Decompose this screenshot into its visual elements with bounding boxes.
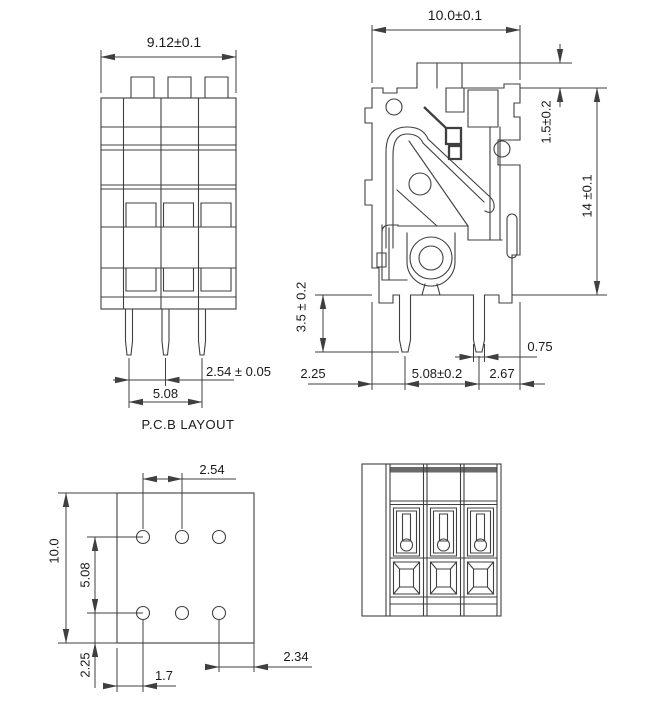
extension-lines bbox=[219, 620, 254, 672]
dim-front-width: 9.12±0.1 bbox=[147, 34, 202, 50]
dim-side-pin-pitch: 5.08±0.2 bbox=[412, 366, 463, 381]
wire-entry-funnel bbox=[468, 562, 494, 594]
pcb-hole bbox=[213, 607, 226, 620]
release-slot bbox=[468, 508, 494, 556]
side-height-dimension: 14 ±0.1 bbox=[512, 88, 607, 295]
release-slot bbox=[431, 508, 457, 556]
side-spring bbox=[386, 127, 494, 248]
pcb-hole bbox=[176, 531, 189, 544]
pcb-board-outline bbox=[117, 493, 254, 643]
side-hole-upper-left bbox=[386, 99, 402, 115]
release-slot bbox=[394, 508, 420, 556]
dim-pcb-hole-pitch: 2.54 bbox=[199, 462, 224, 477]
front-windows-lower bbox=[126, 268, 231, 291]
side-pin-width-dimension: 0.75 bbox=[455, 339, 553, 362]
front-pin-pitch-dimension: 2.54 ± 0.05 bbox=[113, 358, 271, 408]
side-clamp-cage bbox=[407, 233, 455, 295]
extension-lines bbox=[143, 473, 182, 529]
pcb-bottom-offset-dimension: 2.25 bbox=[78, 613, 96, 688]
side-pin-length-dimension: 3.5 ± 0.2 bbox=[294, 282, 400, 352]
side-width-dimension: 10.0±0.1 bbox=[372, 7, 520, 83]
side-view: 10.0±0.1 1.5±0.2 14 ±0.1 3.5 ± 0.2 bbox=[294, 7, 608, 390]
side-button-slot bbox=[437, 63, 498, 127]
side-hole-middle bbox=[409, 173, 431, 195]
pcb-right-offset-dimension: 2.34 bbox=[206, 620, 312, 672]
dim-pcb-right-offset: 2.34 bbox=[283, 649, 308, 664]
dim-side-height: 14 ±0.1 bbox=[580, 174, 595, 217]
dim-pcb-left-offset: 1.7 bbox=[155, 668, 173, 683]
dim-side-lever-height: 1.5±0.2 bbox=[539, 100, 554, 143]
side-clamp-inner-circle bbox=[419, 246, 443, 270]
side-lever-height-dimension: 1.5±0.2 bbox=[462, 44, 572, 144]
technical-drawing-page: 9.12±0.1 2.54 ± 0.05 5.08 P.C.B LAYOUT bbox=[0, 0, 648, 704]
pcb-holes bbox=[137, 531, 226, 620]
dim-side-pin-length: 3.5 ± 0.2 bbox=[294, 282, 309, 333]
front-horizontal-ribs bbox=[101, 127, 236, 297]
top-view-front-band bbox=[390, 467, 497, 473]
side-pusher-bold bbox=[424, 107, 461, 159]
dim-pcb-row-pitch: 5.08 bbox=[78, 562, 93, 587]
extension-lines bbox=[117, 620, 143, 692]
front-top-caps bbox=[131, 77, 228, 98]
pcb-hole-pitch-dimension: 2.54 bbox=[143, 462, 236, 529]
wire-entry-funnel bbox=[394, 562, 420, 594]
pcb-hole bbox=[213, 531, 226, 544]
dim-pcb-board-height: 10.0 bbox=[47, 538, 62, 563]
pcb-layout-view: 2.54 10.0 5.08 2.25 1.7 bbox=[47, 462, 313, 692]
front-windows-upper bbox=[126, 203, 231, 227]
side-bottom-dimension-chain: 2.25 5.08±0.2 2.67 bbox=[300, 302, 545, 390]
dim-side-right-offset: 2.67 bbox=[489, 366, 514, 381]
dim-side-left-offset: 2.25 bbox=[300, 366, 325, 381]
top-view-pole bbox=[431, 508, 457, 594]
wire-entry-funnel bbox=[431, 562, 457, 594]
pcb-left-offset-dimension: 1.7 bbox=[103, 620, 176, 692]
top-view-pole bbox=[468, 508, 494, 594]
terminal-block-drawing: 9.12±0.1 2.54 ± 0.05 5.08 P.C.B LAYOUT bbox=[0, 0, 648, 704]
side-right-slot bbox=[507, 214, 517, 258]
pcb-layout-title: P.C.B LAYOUT bbox=[142, 417, 235, 432]
side-clamp-outer-circle bbox=[410, 237, 452, 279]
extension-lines bbox=[372, 25, 520, 83]
dim-side-pin-width: 0.75 bbox=[527, 339, 552, 354]
side-hole-right bbox=[494, 141, 510, 157]
dim-front-pin-pitch: 2.54 ± 0.05 bbox=[206, 364, 271, 379]
dim-front-pin-span: 5.08 bbox=[153, 386, 178, 401]
top-view bbox=[362, 464, 501, 616]
front-pins bbox=[126, 309, 206, 355]
dim-pcb-bottom-offset: 2.25 bbox=[78, 652, 93, 677]
front-view: 9.12±0.1 2.54 ± 0.05 5.08 P.C.B LAYOUT bbox=[101, 34, 271, 432]
pcb-row-pitch-dimension: 5.08 bbox=[78, 537, 144, 613]
dim-side-width: 10.0±0.1 bbox=[428, 7, 483, 23]
front-pin-span-dimension: 5.08 bbox=[129, 386, 202, 402]
side-body-outline bbox=[365, 63, 520, 352]
top-view-pole bbox=[394, 508, 420, 594]
pcb-hole bbox=[176, 607, 189, 620]
